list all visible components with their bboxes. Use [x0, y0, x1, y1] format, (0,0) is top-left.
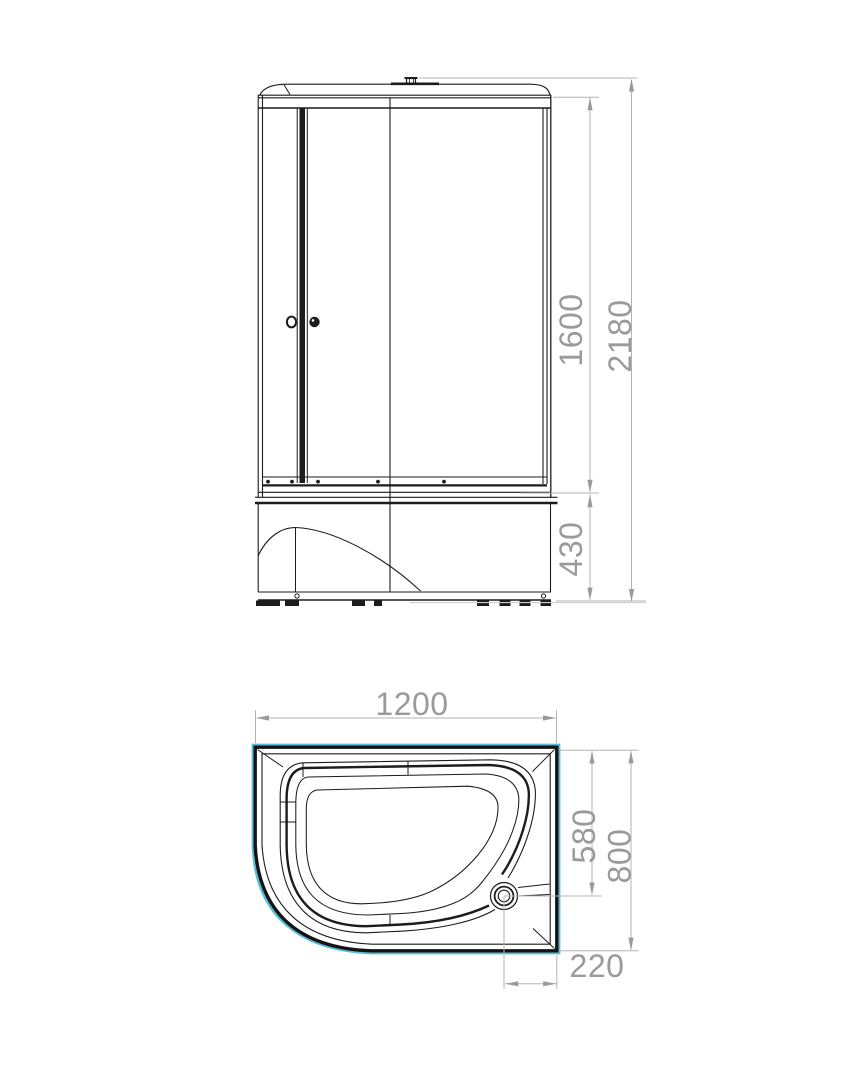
top-cap — [260, 84, 550, 95]
tray-outline — [255, 747, 557, 951]
front-dimensions: 1600 430 2180 — [419, 78, 646, 602]
arrow-left — [256, 715, 269, 720]
base-screw — [295, 594, 299, 598]
handle-highlight — [312, 319, 315, 322]
arrow-left — [505, 981, 518, 986]
plan-dim-drain-offset-side: 220 — [570, 948, 625, 984]
base-screw — [541, 594, 545, 598]
arrow-down — [629, 589, 634, 602]
left-frame — [258, 95, 262, 497]
arrow-up — [629, 79, 634, 92]
arrow-down — [587, 480, 592, 493]
roller-dot — [442, 480, 446, 484]
sliding-door-stile — [300, 108, 306, 483]
plan-dim-drain-offset-depth: 580 — [566, 809, 602, 864]
door-handle-left — [287, 317, 296, 328]
arrow-up — [587, 97, 592, 110]
roller-dot — [266, 480, 270, 484]
plan-view: 1200 580 — [253, 686, 639, 989]
plan-dim-depth: 800 — [602, 829, 638, 884]
arrow-down — [587, 588, 592, 601]
front-dim-tray-height: 430 — [553, 522, 589, 577]
arrow-down — [589, 882, 594, 895]
front-dim-glass-height: 1600 — [553, 293, 589, 366]
arrow-right — [543, 715, 556, 720]
front-view: 1600 430 2180 — [255, 78, 646, 606]
top-frame-lines — [258, 95, 551, 98]
roller-dots — [266, 480, 446, 484]
roller-dot — [376, 480, 380, 484]
roller-dot — [290, 480, 294, 484]
apron-curve — [258, 528, 421, 592]
plan-dim-width: 1200 — [375, 686, 448, 722]
arrow-down — [628, 938, 633, 951]
cap-fold-line — [284, 85, 290, 95]
roller-dot — [316, 480, 320, 484]
arrow-up — [587, 494, 592, 507]
feet-pads — [256, 601, 551, 607]
tray-apron-sides — [258, 503, 550, 592]
technical-drawing-canvas: 1600 430 2180 1200 — [0, 0, 864, 1079]
shower-cabin-drawing: 1600 430 2180 1200 — [0, 0, 864, 1079]
front-dim-total-height: 2180 — [602, 299, 638, 372]
right-side-panel — [543, 108, 547, 484]
arrow-up — [589, 751, 594, 764]
arrow-up — [628, 750, 633, 763]
plan-dim-width-group: 1200 — [256, 686, 557, 743]
arrow-right — [543, 981, 556, 986]
door-handle-right — [309, 317, 319, 327]
